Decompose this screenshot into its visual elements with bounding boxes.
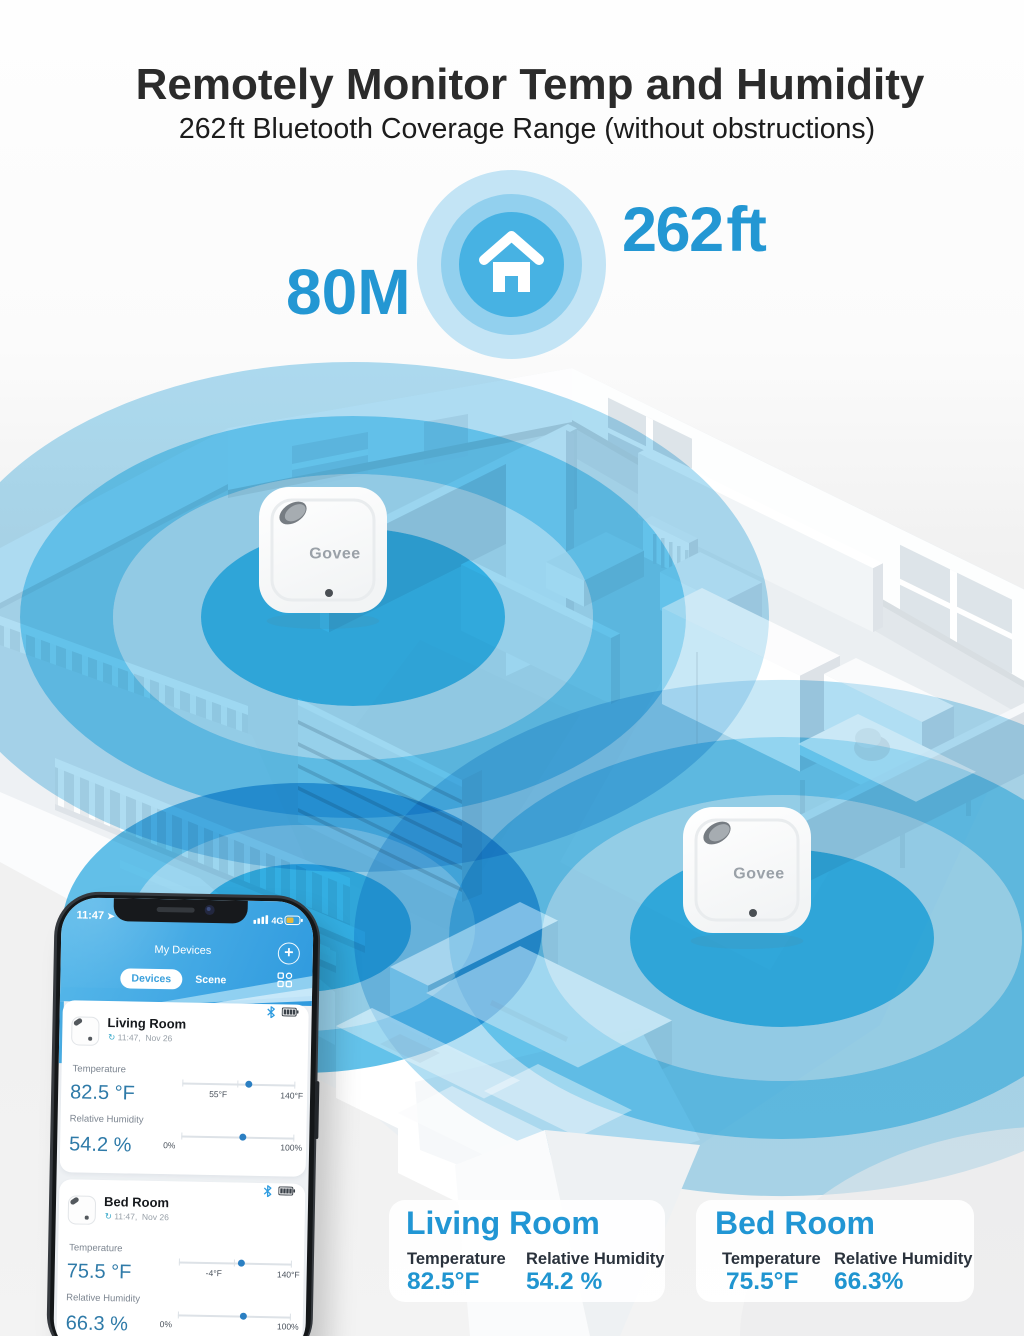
svg-text:Govee: Govee	[309, 546, 360, 563]
svg-text:4G: 4G	[271, 916, 283, 926]
svg-text:Govee: Govee	[733, 866, 784, 883]
